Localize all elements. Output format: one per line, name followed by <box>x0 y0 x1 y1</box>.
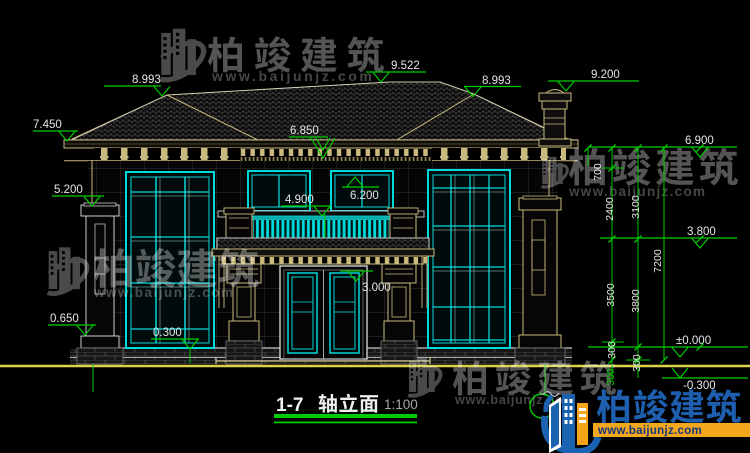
svg-text:0.300: 0.300 <box>153 327 182 339</box>
svg-text:6.900: 6.900 <box>685 135 714 147</box>
svg-text:7.450: 7.450 <box>33 119 62 131</box>
svg-text:4.900: 4.900 <box>285 194 314 206</box>
svg-text:3800: 3800 <box>630 289 642 313</box>
svg-text:300: 300 <box>606 341 618 359</box>
svg-text:3.000: 3.000 <box>362 282 391 294</box>
svg-text:3100: 3100 <box>630 195 642 219</box>
svg-text:6.200: 6.200 <box>350 190 379 202</box>
svg-text:9.200: 9.200 <box>591 69 620 81</box>
svg-text:8.993: 8.993 <box>482 75 511 87</box>
svg-text:300: 300 <box>605 368 617 386</box>
svg-text:300: 300 <box>631 354 643 372</box>
svg-text:www.baijunjz.com: www.baijunjz.com <box>597 425 702 437</box>
svg-text:3500: 3500 <box>605 283 617 307</box>
svg-text:8.993: 8.993 <box>132 74 161 86</box>
svg-text:0.650: 0.650 <box>50 313 79 325</box>
svg-text:2400: 2400 <box>604 197 616 221</box>
svg-text:9.522: 9.522 <box>391 60 420 72</box>
svg-text:www.baijunjz.com: www.baijunjz.com <box>93 285 235 300</box>
svg-text:1-7: 1-7 <box>276 395 303 416</box>
svg-text:1:100: 1:100 <box>384 397 418 412</box>
svg-text:-0.300: -0.300 <box>683 380 716 392</box>
svg-text:±0.000: ±0.000 <box>676 335 711 347</box>
svg-text:3.800: 3.800 <box>687 226 716 238</box>
svg-text:7200: 7200 <box>652 249 664 273</box>
svg-text:www.baijunjz.com: www.baijunjz.com <box>211 68 374 84</box>
svg-text:6.850: 6.850 <box>290 125 319 137</box>
svg-text:700: 700 <box>592 163 604 181</box>
svg-text:5.200: 5.200 <box>54 184 83 196</box>
